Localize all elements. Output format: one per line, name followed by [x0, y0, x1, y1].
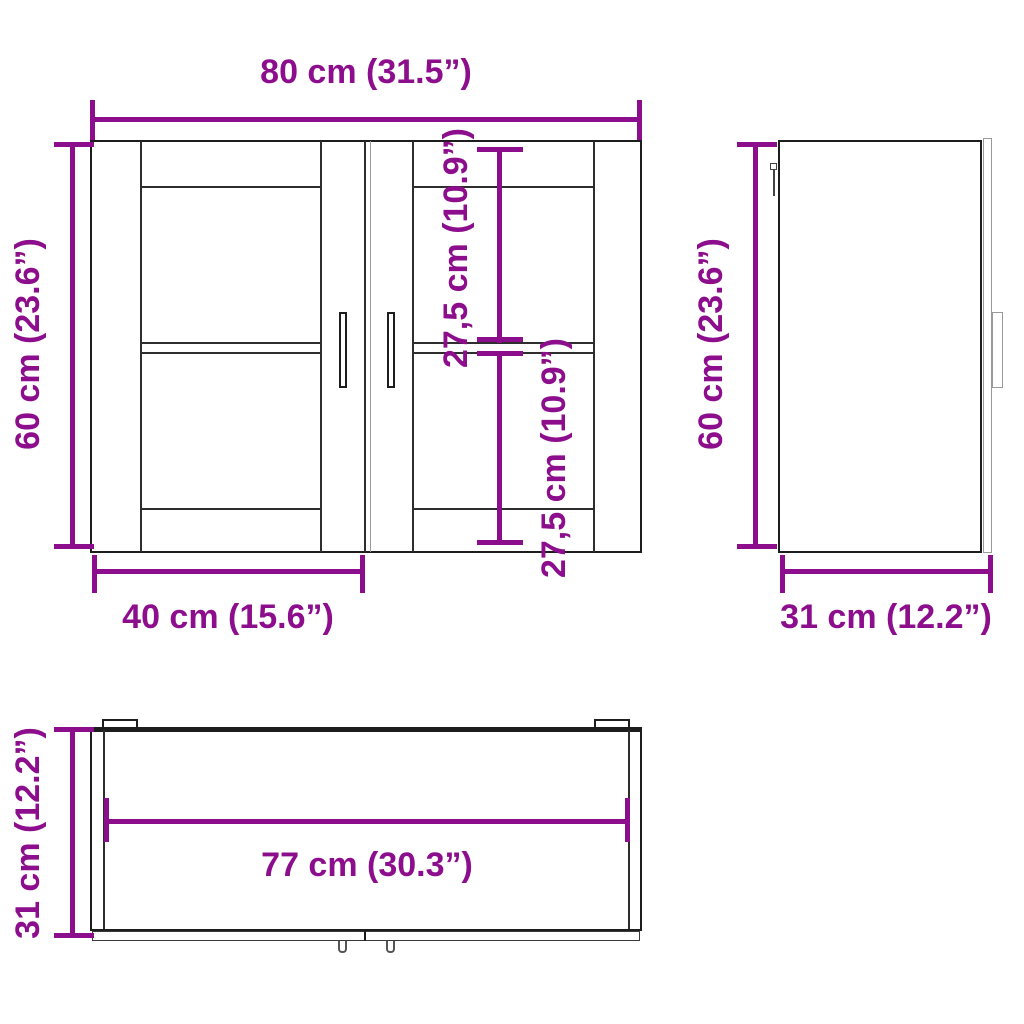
front-lower-section-tick-bottom	[477, 540, 523, 545]
front-door-gap-line-left	[364, 141, 366, 552]
front-height-dimension-tick-bottom	[54, 544, 94, 549]
front-door-gap-line-right	[370, 141, 371, 552]
top-depth-dimension-tick-bottom	[54, 933, 94, 938]
front-left-door-handle	[339, 312, 347, 388]
top-depth-dimension-tick-top	[54, 727, 94, 732]
front-height-dimension-line	[70, 142, 75, 549]
side-height-dimension-label: 60 cm (23.6”)	[689, 144, 733, 544]
side-depth-tick-left	[780, 555, 785, 593]
front-width-dimension-tick-left	[90, 100, 95, 140]
top-depth-dimension-label: 31 cm (12.2”)	[6, 633, 50, 1024]
front-width-dimension-line	[90, 117, 642, 122]
side-wall-bracket-icon	[770, 163, 777, 170]
top-wall-bracket-right-icon	[594, 719, 630, 729]
top-left-door-handle-icon	[338, 941, 347, 953]
front-door-width-dimension-label: 40 cm (15.6”)	[28, 595, 428, 639]
front-left-stile-line	[140, 141, 142, 552]
front-door-width-tick-left	[92, 555, 97, 593]
front-door-width-dimension-line	[92, 569, 365, 574]
side-height-dimension-tick-bottom	[737, 544, 777, 549]
front-width-dimension-tick-right	[637, 100, 642, 140]
front-left-door-right-stile-line	[320, 141, 322, 552]
front-shelf-line-lower-left	[142, 352, 320, 354]
top-door-slab	[92, 931, 640, 941]
side-door-handle	[992, 312, 1003, 388]
top-inner-width-tick-right	[625, 798, 630, 842]
front-door-width-tick-right	[360, 555, 365, 593]
front-top-rail-line-left	[142, 186, 320, 188]
front-right-door-handle	[387, 312, 395, 388]
front-shelf-line-upper-left	[142, 342, 320, 344]
front-right-stile-line	[593, 141, 595, 552]
side-height-dimension-tick-top	[737, 142, 777, 147]
top-wall-bracket-left-icon	[102, 719, 138, 729]
front-lower-section-dimension-line	[497, 351, 502, 545]
front-upper-section-dimension-label: 27,5 cm (10.9”)	[434, 48, 478, 448]
top-inner-width-tick-left	[104, 798, 109, 842]
front-lower-section-dimension-label: 27,5 cm (10.9”)	[532, 258, 576, 658]
front-upper-section-dimension-line	[497, 147, 502, 343]
front-bottom-rail-line-left	[142, 508, 320, 510]
side-height-dimension-line	[753, 142, 758, 549]
top-door-gap-tick	[364, 931, 366, 941]
side-depth-dimension-line	[780, 569, 993, 574]
top-back-panel-line	[90, 727, 642, 732]
front-right-door-left-stile-line	[412, 141, 414, 552]
side-depth-tick-right	[988, 555, 993, 593]
side-door-panel	[983, 138, 992, 553]
top-right-door-handle-icon	[386, 941, 395, 953]
top-inner-width-dimension-label: 77 cm (30.3”)	[167, 843, 567, 887]
front-lower-section-tick-top	[477, 351, 523, 356]
side-depth-dimension-label: 31 cm (12.2”)	[686, 595, 1024, 639]
front-upper-section-tick-bottom	[477, 337, 523, 342]
front-height-dimension-tick-top	[54, 142, 94, 147]
front-width-dimension-label: 80 cm (31.5”)	[166, 50, 566, 94]
side-cabinet-outline	[778, 140, 982, 553]
side-wall-bracket-hook	[773, 170, 775, 196]
top-depth-dimension-line	[70, 727, 75, 938]
front-upper-section-tick-top	[477, 147, 523, 152]
top-cabinet-outline	[90, 728, 642, 931]
dimension-diagram: 80 cm (31.5”) 60 cm (23.6”) 27,5 cm (10.…	[0, 0, 1024, 1024]
front-height-dimension-label: 60 cm (23.6”)	[6, 144, 50, 544]
top-inner-width-dimension-line	[104, 819, 630, 824]
